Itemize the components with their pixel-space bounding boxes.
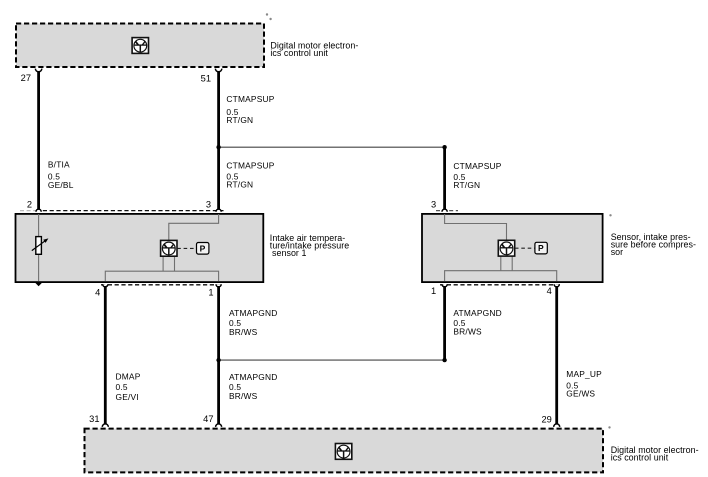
svg-text:GE/WS: GE/WS (566, 389, 595, 399)
svg-text:1: 1 (208, 287, 213, 297)
svg-text:31: 31 (89, 414, 99, 424)
svg-text:CTMAPSUP: CTMAPSUP (453, 161, 501, 171)
svg-text:ATMAPGND: ATMAPGND (229, 372, 277, 382)
svg-text:27: 27 (21, 73, 31, 83)
svg-text:ics control unit: ics control unit (270, 48, 328, 58)
svg-text:P: P (538, 243, 544, 253)
svg-text:RT/GN: RT/GN (453, 180, 480, 190)
svg-text:CTMAPSUP: CTMAPSUP (226, 161, 274, 171)
svg-text:MAP_UP: MAP_UP (566, 369, 602, 379)
svg-text:4: 4 (95, 287, 100, 297)
svg-text:GE/VI: GE/VI (116, 392, 139, 402)
svg-text:3: 3 (431, 200, 436, 210)
svg-text:3: 3 (206, 200, 211, 210)
svg-text:ATMAPGND: ATMAPGND (229, 308, 277, 318)
svg-text:CTMAPSUP: CTMAPSUP (226, 94, 274, 104)
svg-text:29: 29 (541, 414, 551, 424)
svg-text:0.5: 0.5 (116, 382, 128, 392)
svg-text:2: 2 (27, 200, 32, 210)
svg-text:RT/GN: RT/GN (226, 180, 253, 190)
svg-text:GE/BL: GE/BL (48, 180, 74, 190)
svg-text:47: 47 (203, 414, 213, 424)
svg-text:BR/WS: BR/WS (229, 391, 258, 401)
svg-text:ATMAPGND: ATMAPGND (453, 308, 501, 318)
svg-text:P: P (200, 243, 206, 253)
svg-text:BR/WS: BR/WS (453, 327, 482, 337)
svg-text:51: 51 (201, 74, 211, 84)
svg-text:sensor 1: sensor 1 (272, 248, 306, 258)
svg-text:sure before compres-: sure before compres- (611, 239, 696, 249)
svg-text:sor: sor (611, 247, 623, 257)
svg-text:DMAP: DMAP (116, 372, 141, 382)
svg-text:ics control unit: ics control unit (611, 452, 669, 462)
svg-text:1: 1 (431, 286, 436, 296)
svg-text:RT/GN: RT/GN (226, 115, 253, 125)
svg-text:4: 4 (547, 286, 552, 296)
svg-text:BR/WS: BR/WS (229, 327, 258, 337)
svg-text:B/TIA: B/TIA (48, 160, 70, 170)
